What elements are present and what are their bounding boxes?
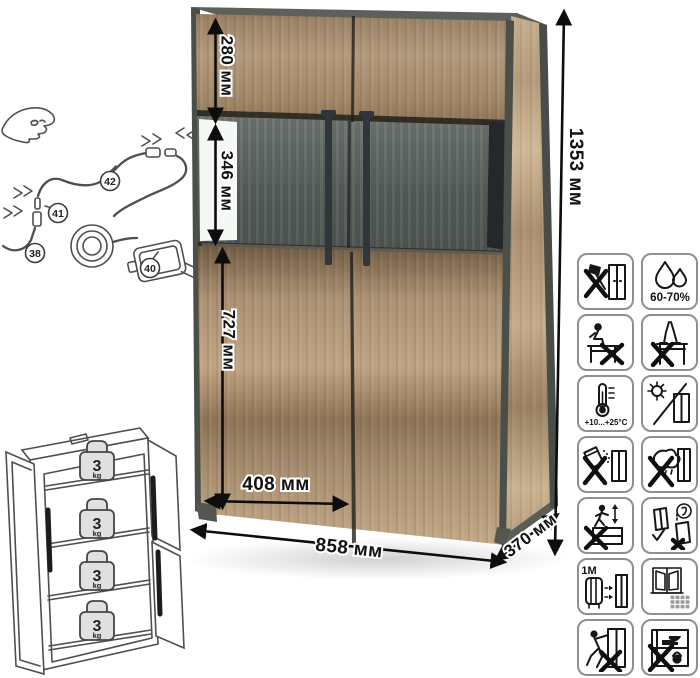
x-mark xyxy=(653,344,672,365)
sun-rays xyxy=(648,382,666,400)
power-adapter xyxy=(125,237,200,291)
person-body xyxy=(595,511,608,526)
weight-unit: kg xyxy=(93,631,102,640)
icon-no-sitting xyxy=(577,314,634,371)
x-mark xyxy=(585,458,605,483)
door-handle-left xyxy=(325,111,332,265)
barrel-plug xyxy=(165,149,176,156)
humidity-text: 60-70% xyxy=(650,292,690,304)
icon-no-heavy-load-inside xyxy=(641,619,698,676)
mate-arrows xyxy=(142,128,195,146)
distance-text: ≥1M xyxy=(582,565,597,577)
callout-38-label: 38 xyxy=(29,248,41,260)
icon-no-sharp-tools xyxy=(577,253,634,310)
weight-unit: kg xyxy=(93,529,102,538)
cable-coil xyxy=(77,231,107,261)
person-icon xyxy=(594,323,602,331)
insert-arrows-b xyxy=(4,206,22,218)
furniture-dimension-diagram: 38 41 42 40 3 kg 3 xyxy=(0,0,700,678)
cable-coil xyxy=(83,237,101,255)
barrel-connector xyxy=(146,148,160,157)
sketch-right-lower-handle xyxy=(158,552,160,614)
x-mark xyxy=(602,345,622,363)
adapter-cable xyxy=(114,156,186,216)
icon-no-abrasive-cleaners xyxy=(577,436,634,493)
care-icon-grid: 60-70% +10...+25°C xyxy=(577,253,698,676)
hand-fingers xyxy=(31,120,45,125)
handle-cap xyxy=(321,110,336,116)
shelf-load-sketch: 3 kg 3 kg 3 kg 3 kg xyxy=(0,422,190,678)
sun-icon xyxy=(652,386,662,396)
ear-shape xyxy=(682,507,686,515)
upright-cabinet-glyph xyxy=(654,508,668,530)
icon-ventilate-room xyxy=(641,558,698,615)
radiator-icon xyxy=(586,578,602,604)
icon-no-standing xyxy=(641,314,698,371)
callout-41-label: 41 xyxy=(52,208,64,220)
water-drop-icon xyxy=(673,269,686,287)
extension-cable xyxy=(38,153,146,196)
handle-cap xyxy=(359,111,374,117)
callout-42-label: 42 xyxy=(104,176,116,188)
icon-temperature-range: +10...+25°C xyxy=(577,375,634,432)
x-mark xyxy=(650,458,672,485)
sketch-right-upper-handle xyxy=(153,478,155,538)
weight-unit: kg xyxy=(93,581,102,590)
weight-unit: kg xyxy=(93,471,102,480)
insert-arrows-a xyxy=(14,186,32,198)
legs-icon xyxy=(660,322,680,343)
temperature-text: +10...+25°C xyxy=(584,418,627,427)
icon-no-jumping xyxy=(577,497,634,554)
check-mark xyxy=(653,530,664,540)
sketch-left-handle xyxy=(48,510,50,570)
icon-no-direct-sunlight xyxy=(641,375,698,432)
icon-no-tilting-pulling xyxy=(577,619,634,676)
coil-exit xyxy=(113,238,137,242)
cabinet-doors-glyph xyxy=(614,265,621,299)
strip-connector-male xyxy=(35,198,40,209)
icon-keep-distance-heater: ≥1M xyxy=(577,558,634,615)
person-body xyxy=(587,635,608,667)
icon-transport-upright xyxy=(641,497,698,554)
led-wiring-sketch: 38 41 42 40 xyxy=(0,96,200,301)
door-handle-right xyxy=(363,112,370,266)
callout-40-label: 40 xyxy=(144,263,156,275)
icon-humidity-60-70: 60-70% xyxy=(641,253,698,310)
hand-icon xyxy=(2,108,54,143)
icon-no-wet-cleaning xyxy=(641,436,698,493)
anvil-icon xyxy=(662,636,681,645)
strip-connector-female xyxy=(33,212,41,226)
arrow-heads xyxy=(609,585,613,599)
ear-icon xyxy=(677,504,691,518)
water-drop-icon xyxy=(656,262,674,288)
